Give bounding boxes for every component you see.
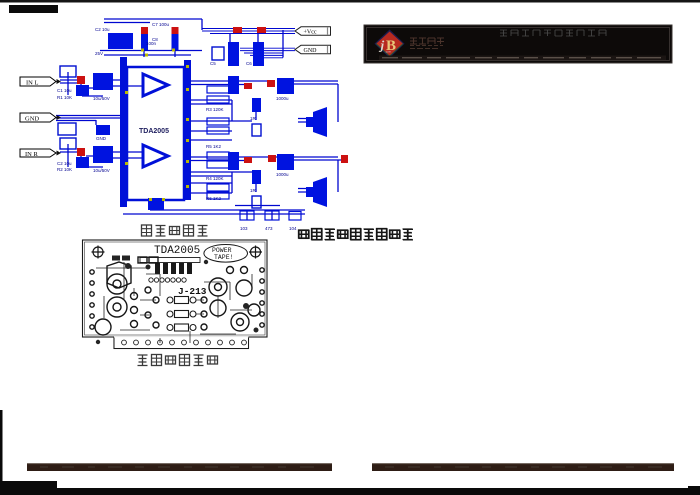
svg-text:R6 1K2: R6 1K2 xyxy=(206,196,222,201)
svg-text:GND: GND xyxy=(96,136,107,141)
svg-text:10u/50V: 10u/50V xyxy=(93,168,110,173)
svg-text:1R: 1R xyxy=(250,116,257,121)
svg-text:1000u: 1000u xyxy=(276,172,289,177)
svg-text:R1 10K: R1 10K xyxy=(57,95,72,100)
svg-text:473: 473 xyxy=(265,226,273,231)
svg-text:10u/50V: 10u/50V xyxy=(93,96,110,101)
svg-text:R3 120K: R3 120K xyxy=(206,107,224,112)
svg-text:103: 103 xyxy=(240,226,248,231)
svg-text:TDA2005: TDA2005 xyxy=(154,245,200,257)
svg-text:POWER: POWER xyxy=(212,247,232,254)
svg-text:+Vcc: +Vcc xyxy=(304,30,317,36)
svg-text:.com: .com xyxy=(385,50,392,54)
svg-text:C7 100u: C7 100u xyxy=(152,22,170,27)
svg-text:IN L: IN L xyxy=(26,80,38,87)
svg-text:R2 10K: R2 10K xyxy=(57,167,72,172)
svg-text:C6: C6 xyxy=(246,61,252,66)
svg-text:GND: GND xyxy=(25,116,39,123)
svg-text:C1 10u: C1 10u xyxy=(57,88,72,93)
svg-text:J-213: J-213 xyxy=(178,286,207,297)
svg-text:100n: 100n xyxy=(146,41,157,46)
svg-text:104: 104 xyxy=(289,226,297,231)
svg-text:GND: GND xyxy=(304,48,318,54)
svg-text:C5: C5 xyxy=(210,61,216,66)
svg-text:C2 10u: C2 10u xyxy=(57,161,72,166)
svg-text:1R: 1R xyxy=(250,188,257,193)
svg-text:1000u: 1000u xyxy=(276,96,289,101)
svg-text:IN R: IN R xyxy=(25,151,38,158)
svg-text:R4 120K: R4 120K xyxy=(206,176,224,181)
svg-text:TAPE!: TAPE! xyxy=(214,254,234,261)
svg-text:R5 1K2: R5 1K2 xyxy=(206,144,222,149)
svg-text:TDA2005: TDA2005 xyxy=(139,128,169,135)
svg-text:C2 10u: C2 10u xyxy=(95,27,110,32)
svg-text:25V: 25V xyxy=(95,51,103,56)
